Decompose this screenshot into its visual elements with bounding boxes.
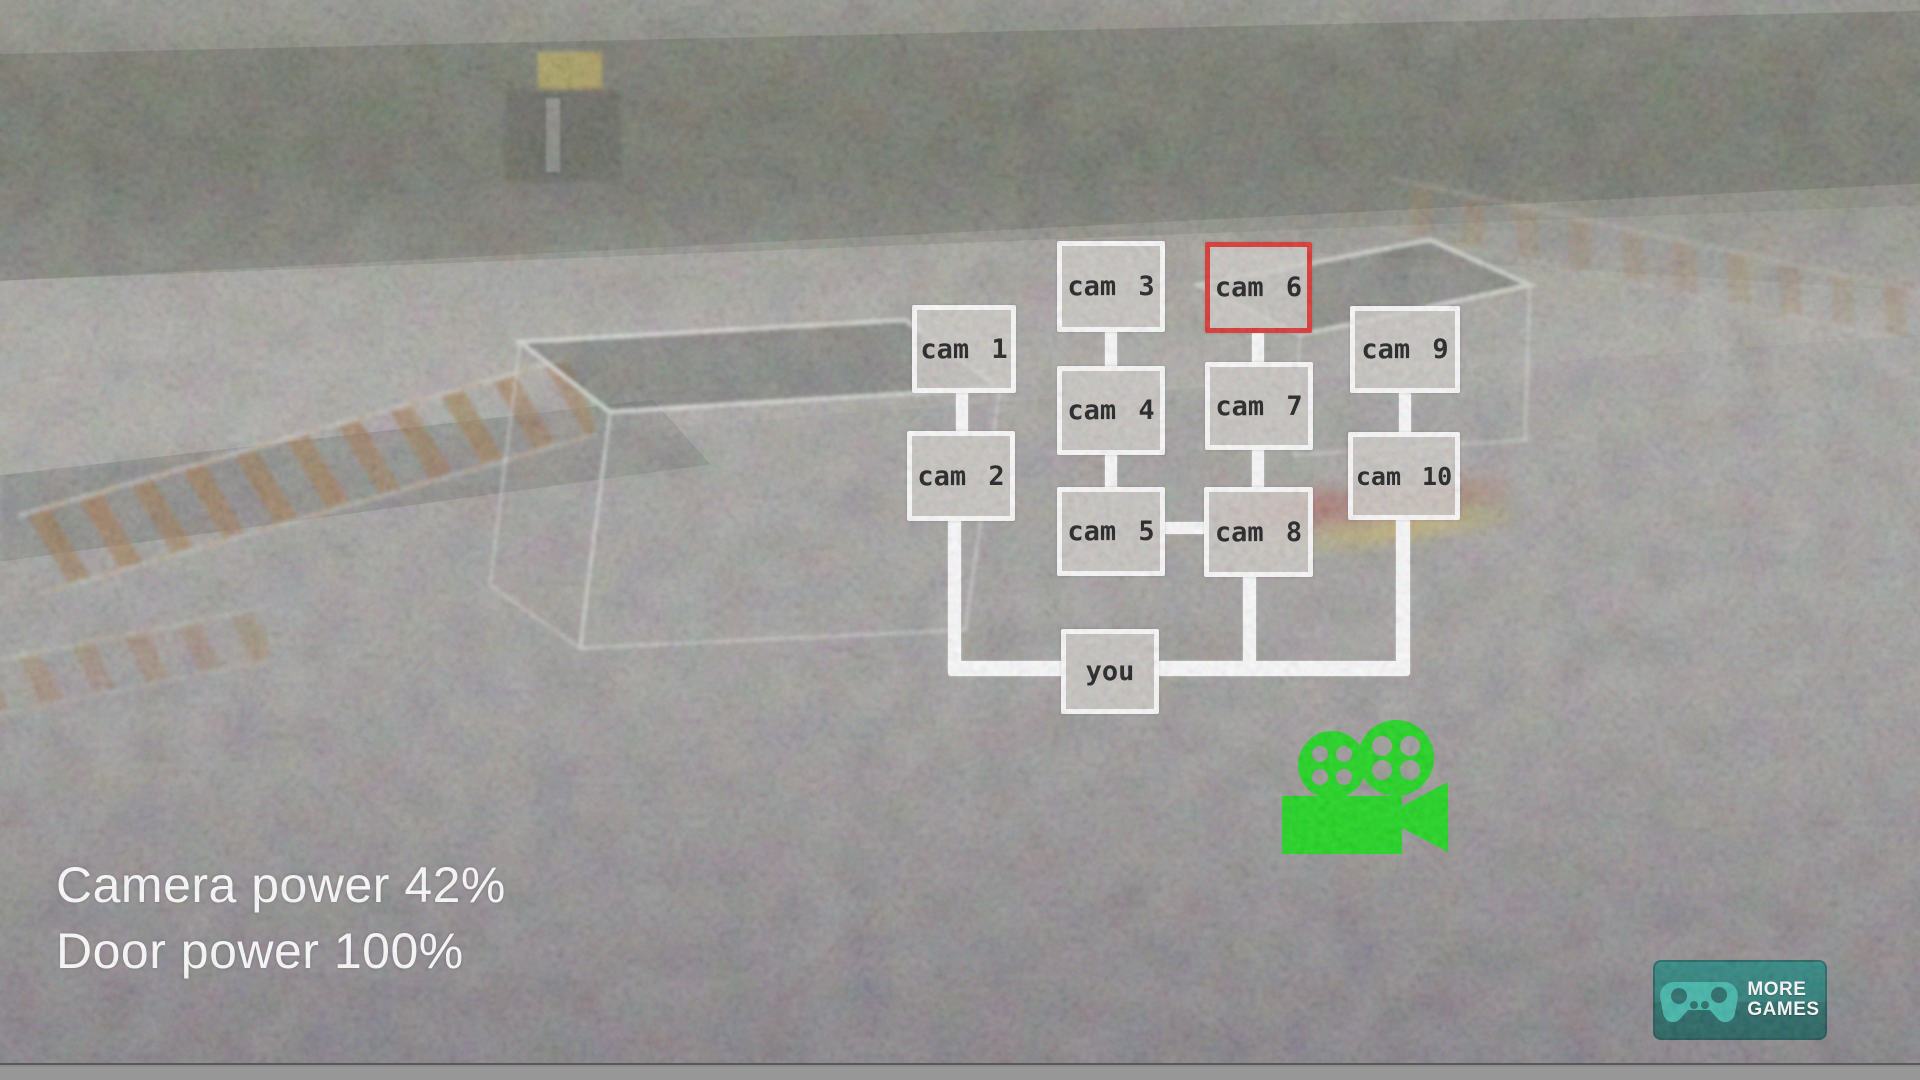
map-connector [1399,391,1411,436]
camera-button-label: cam 3 [1067,271,1154,302]
scrollbar-thumb[interactable] [0,1067,1920,1080]
door-power-value: 100% [334,923,464,979]
camera-button-cam-9[interactable]: cam 9 [1350,306,1460,393]
camera-button-label: cam 8 [1215,517,1302,548]
gamepad-icon [1660,972,1738,1028]
camera-button-label: cam 7 [1215,391,1302,422]
camera-button-label: cam 10 [1356,462,1452,491]
horizontal-scrollbar[interactable] [0,1063,1920,1080]
map-connector [1252,331,1264,366]
player-location-label: you [1086,656,1135,687]
map-connector [956,391,968,435]
player-location-box: you [1061,629,1159,714]
camera-button-cam-6[interactable]: cam 6 [1205,242,1312,333]
map-connector [948,661,1064,676]
power-status: Camera power 42% Door power 100% [56,852,506,984]
map-connector [1396,518,1410,670]
camera-button-label: cam 5 [1067,516,1154,547]
more-games-label: MORE GAMES [1747,980,1819,1020]
map-connector [1243,575,1256,670]
map-connector [1105,330,1117,370]
door-power-label: Door power [56,923,319,979]
camera-button-label: cam 4 [1067,395,1154,426]
camera-button-cam-10[interactable]: cam 10 [1348,432,1460,520]
camera-button-label: cam 9 [1361,334,1448,365]
camera-button-label: cam 6 [1215,272,1302,303]
door-power-text: Door power 100% [56,918,506,984]
map-connector [1252,448,1264,491]
camera-button-cam-5[interactable]: cam 5 [1057,487,1165,576]
camera-power-text: Camera power 42% [56,852,506,918]
map-connector [1105,453,1117,491]
camera-button-cam-4[interactable]: cam 4 [1057,366,1165,455]
map-connector [1157,661,1410,676]
camera-button-label: cam 2 [917,461,1004,492]
camera-button-cam-8[interactable]: cam 8 [1204,487,1313,577]
camera-power-label: Camera power [56,857,390,913]
camera-button-cam-3[interactable]: cam 3 [1057,241,1165,332]
camera-power-value: 42% [404,857,506,913]
game-screen: cam 1 cam 2 cam 3 cam 4 cam 5 cam 6 cam … [0,0,1920,1080]
camera-button-cam-1[interactable]: cam 1 [912,305,1016,393]
camera-button-cam-7[interactable]: cam 7 [1205,362,1313,450]
camera-button-cam-2[interactable]: cam 2 [907,431,1015,521]
more-games-button[interactable]: MORE GAMES [1653,960,1827,1040]
map-connector [948,519,961,669]
map-connector [1163,522,1208,534]
camera-button-label: cam 1 [920,334,1007,365]
film-camera-icon[interactable] [1276,720,1448,864]
